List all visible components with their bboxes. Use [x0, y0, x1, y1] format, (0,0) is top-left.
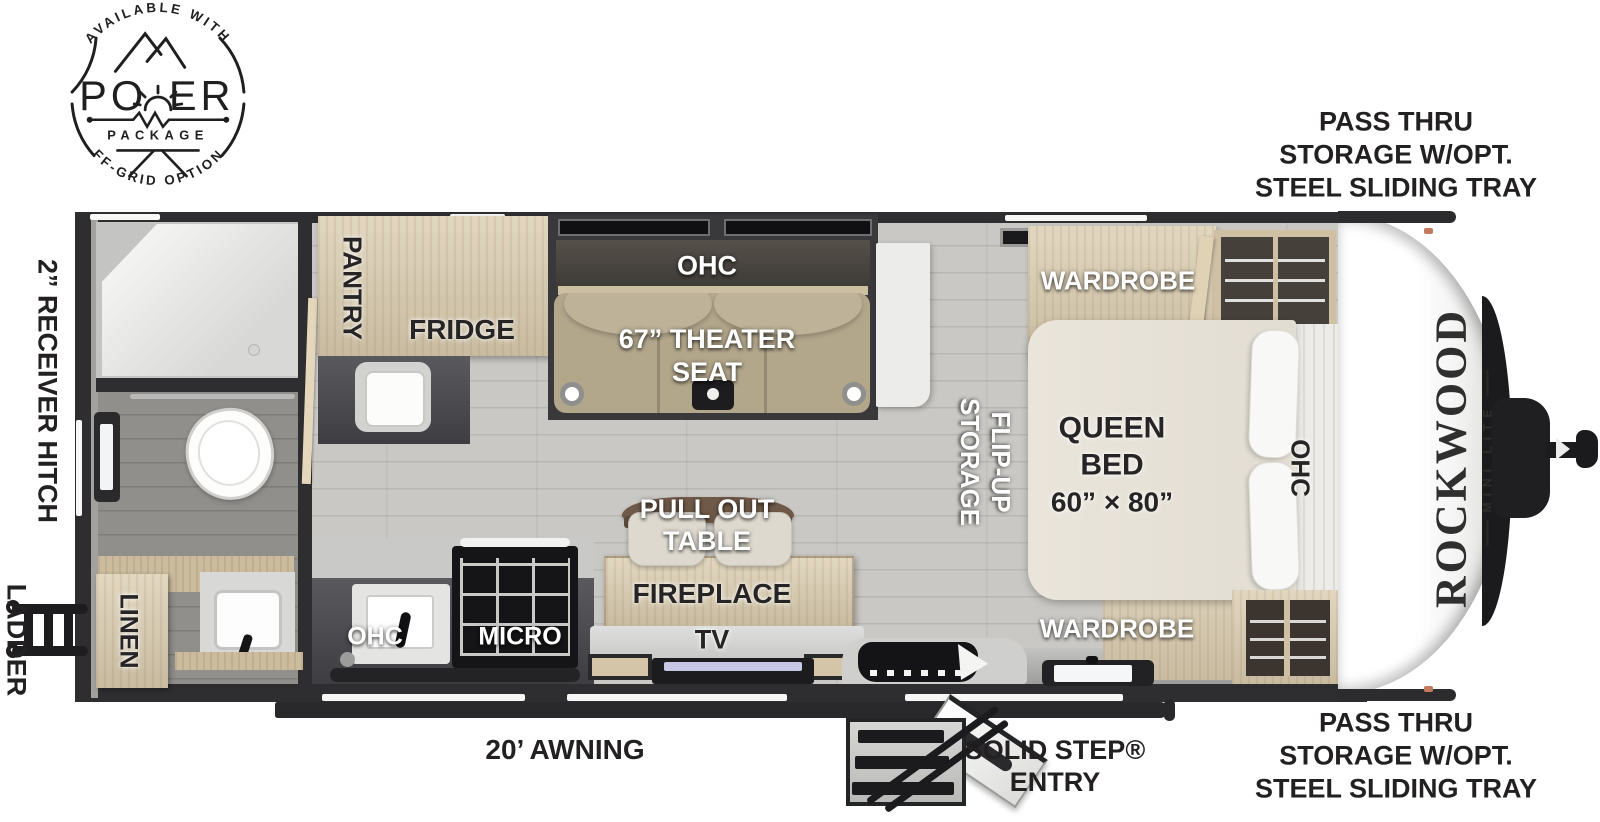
- tv-screen: [664, 662, 802, 671]
- label-kitchen-ohc: OHC: [347, 623, 403, 652]
- cooktop-tablet-screen: [1054, 665, 1132, 682]
- label-micro: MICRO: [478, 623, 561, 652]
- marker-light-bottom: [1424, 686, 1433, 692]
- label-theater-seat: 67” THEATER SEAT: [619, 323, 796, 389]
- slide-end-cabinet: [876, 243, 930, 407]
- label-fireplace: FIREPLACE: [633, 578, 792, 610]
- entry-note: SOLID STEP® ENTRY: [965, 734, 1145, 798]
- shower-drain: [248, 344, 260, 356]
- badge-power-left: PO: [79, 72, 147, 119]
- propane-cover: [1492, 398, 1550, 518]
- label-pantry: PANTRY: [337, 236, 368, 340]
- label-wardrobe-bottom: WARDROBE: [1040, 614, 1195, 645]
- cupholder-right: [842, 382, 866, 406]
- awning-rail: [275, 702, 1168, 718]
- badge-power-right: ER: [169, 72, 235, 119]
- marker-light-top: [1424, 228, 1433, 234]
- step-tread-2: [855, 756, 949, 769]
- brand-logo: ROCKWOOD MINI LITE: [1426, 308, 1495, 608]
- bottom-window-3: [905, 694, 1123, 701]
- label-queen-bed: QUEEN BED 60” × 80”: [1051, 410, 1173, 521]
- top-window-1: [90, 214, 160, 220]
- step-tread-1: [858, 730, 944, 743]
- brand-rule-right: [1487, 370, 1489, 396]
- label-theater-ohc: OHC: [677, 251, 737, 282]
- mountains-icon: [115, 34, 184, 72]
- cooktop-tablet-knob: [1086, 656, 1098, 664]
- rear-window: [76, 420, 82, 516]
- seat-console-cup: [707, 388, 719, 400]
- badge-package-text: PACKAGE: [107, 128, 208, 143]
- bottom-window-2: [567, 694, 787, 701]
- pass-thru-note-bottom: PASS THRU STORAGE W/OPT. STEEL SLIDING T…: [1255, 707, 1537, 806]
- awning-rail-cap: [1164, 699, 1175, 721]
- power-package-badge: AVAILABLE WITH OFF-GRID OPTIONS PO ER PA…: [62, 2, 254, 194]
- cupholder-left: [560, 382, 584, 406]
- floorplan-canvas: AVAILABLE WITH OFF-GRID OPTIONS PO ER PA…: [0, 0, 1600, 822]
- medicine-cabinet-mirror: [100, 424, 113, 490]
- side-table-left: [588, 654, 652, 680]
- badge-arc-top-text: AVAILABLE WITH: [82, 2, 234, 46]
- pass-thru-note-top: PASS THRU STORAGE W/OPT. STEEL SLIDING T…: [1255, 106, 1537, 205]
- label-tv: TV: [695, 625, 730, 656]
- label-flip-up-storage: FLIP-UP STORAGE: [954, 398, 1016, 526]
- nose-cap-top: [1338, 211, 1456, 223]
- label-wardrobe-top: WARDROBE: [1041, 266, 1196, 297]
- bottom-window-1: [322, 694, 525, 701]
- stove-handle: [460, 538, 570, 547]
- nose-cap-bottom: [1338, 689, 1456, 701]
- label-bed-ohc: OHC: [1285, 439, 1316, 497]
- sink-dots: [870, 670, 966, 676]
- kitchen-sink-top-basin: [365, 371, 425, 427]
- slideout-window-2: [724, 219, 872, 236]
- label-pull-out-table: PULL OUT TABLE: [640, 493, 775, 557]
- wardrobe-bottom-cabinet: [1232, 590, 1342, 684]
- label-linen: LINEN: [114, 594, 143, 669]
- bathroom-divider-wall: [96, 378, 302, 392]
- towel-bar: [130, 394, 295, 399]
- top-window-3: [1005, 215, 1147, 221]
- brand-subtitle: MINI LITE: [1481, 308, 1495, 608]
- receiver-hitch-note: 2” RECEIVER HITCH: [32, 259, 63, 523]
- counter-knob: [340, 652, 355, 667]
- hitch-coupler: [1576, 430, 1598, 468]
- vanity-counter-edge: [175, 652, 303, 670]
- slideout-window-1: [558, 219, 710, 236]
- wardrobe-post: [1273, 237, 1278, 329]
- counter-tray: [330, 668, 580, 682]
- wardrobe-bottom-post: [1284, 600, 1290, 676]
- awning-note: 20’ AWNING: [485, 734, 644, 766]
- ladder-note: LADDER: [1, 584, 32, 697]
- label-fridge: FRIDGE: [409, 314, 515, 346]
- brand-name: ROCKWOOD: [1426, 308, 1477, 608]
- brand-rule-left: [1487, 520, 1489, 546]
